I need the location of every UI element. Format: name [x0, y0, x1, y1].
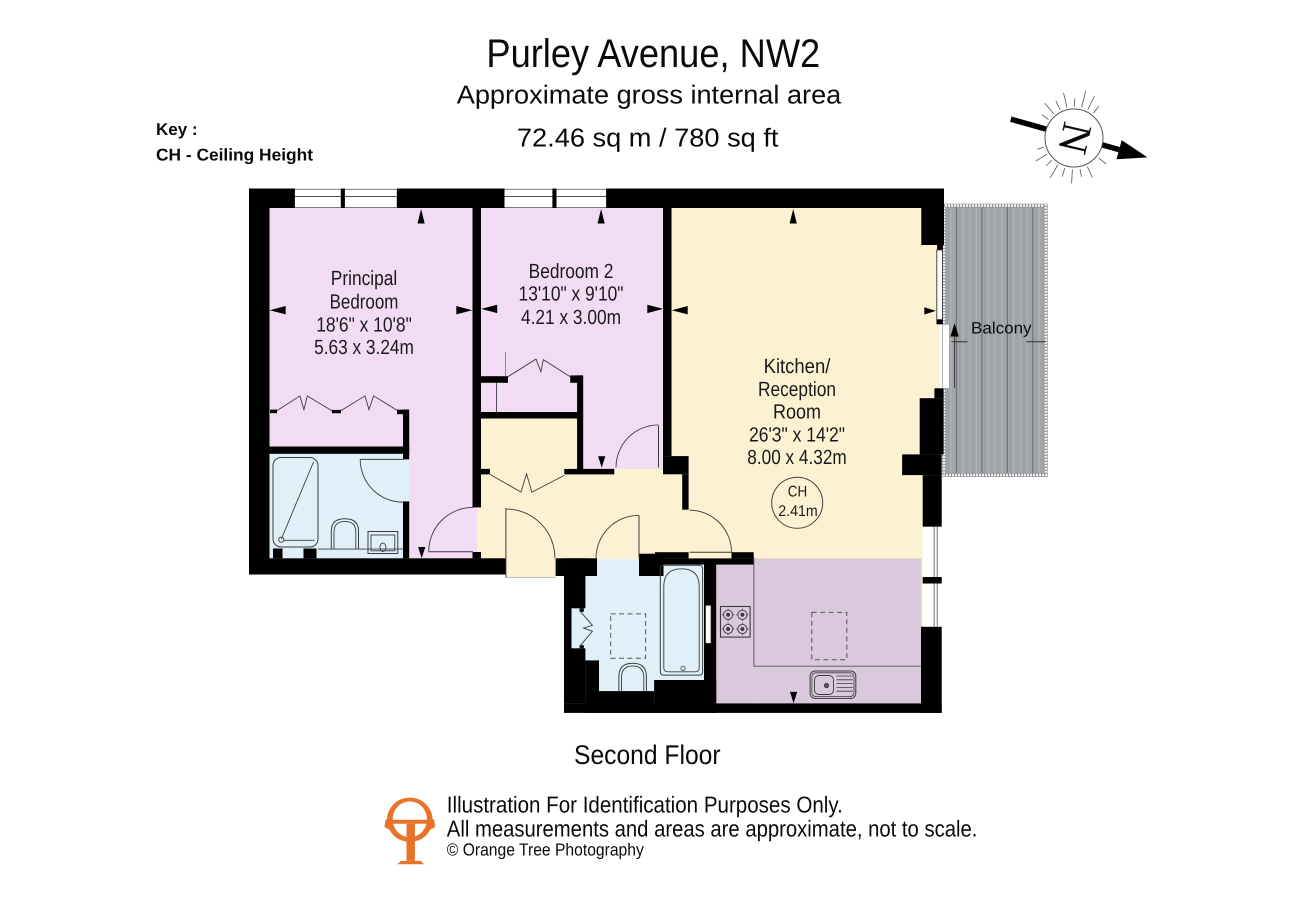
svg-text:2.41m: 2.41m	[778, 503, 818, 520]
svg-text:Bedroom 2: Bedroom 2	[529, 260, 614, 283]
svg-text:CH - Ceiling Height: CH - Ceiling Height	[156, 146, 313, 165]
svg-text:26'3" x 14'2": 26'3" x 14'2"	[749, 423, 845, 446]
svg-text:Reception: Reception	[758, 378, 836, 401]
svg-text:Approximate gross internal are: Approximate gross internal area	[457, 79, 842, 109]
svg-text:8.00 x 4.32m: 8.00 x 4.32m	[747, 446, 846, 469]
svg-text:Bedroom: Bedroom	[330, 291, 399, 314]
svg-text:Second Floor: Second Floor	[574, 740, 721, 770]
svg-text:Purley Avenue, NW2: Purley Avenue, NW2	[486, 32, 820, 76]
svg-text:18'6" x 10'8": 18'6" x 10'8"	[316, 314, 412, 337]
svg-text:72.46 sq m / 780 sq ft: 72.46 sq m / 780 sq ft	[517, 123, 779, 153]
svg-text:Key :: Key :	[156, 120, 198, 139]
svg-text:Kitchen/: Kitchen/	[764, 355, 831, 378]
svg-text:CH: CH	[788, 484, 807, 501]
svg-text:Balcony: Balcony	[971, 320, 1032, 338]
svg-text:5.63 x 3.24m: 5.63 x 3.24m	[314, 336, 414, 359]
svg-text:Principal: Principal	[331, 267, 398, 290]
svg-text:© Orange Tree Photography: © Orange Tree Photography	[447, 840, 644, 860]
svg-text:Room: Room	[773, 401, 821, 424]
svg-text:All measurements and areas are: All measurements and areas are approxima…	[447, 816, 978, 842]
svg-text:Illustration For Identificatio: Illustration For Identification Purposes…	[447, 792, 843, 818]
svg-text:4.21 x 3.00m: 4.21 x 3.00m	[521, 306, 621, 329]
svg-text:13'10" x 9'10": 13'10" x 9'10"	[519, 283, 624, 306]
